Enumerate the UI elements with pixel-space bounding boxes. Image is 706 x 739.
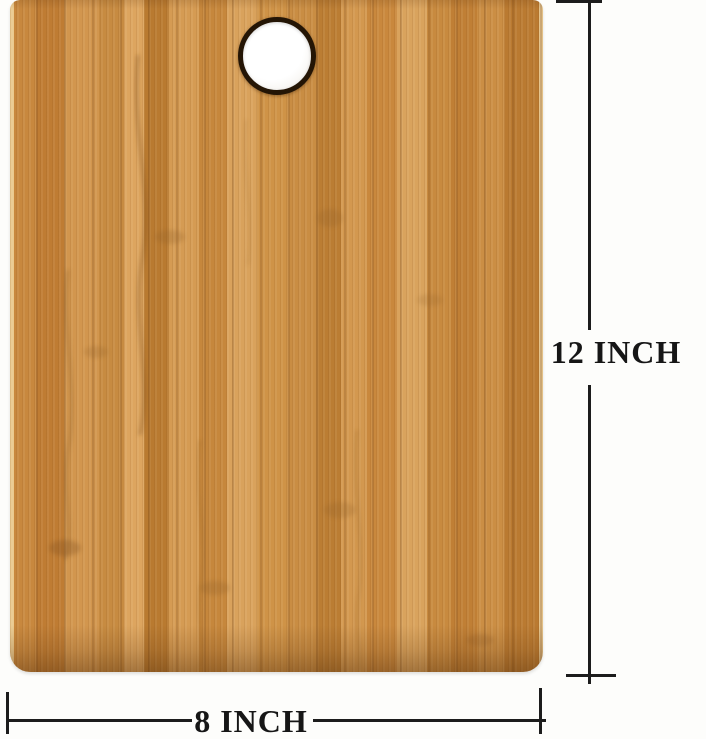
height-dimension-cap-top	[556, 0, 602, 3]
height-dimension-line-lower	[588, 385, 591, 684]
wood-grain-texture	[10, 0, 543, 672]
width-dimension-cap-left	[6, 692, 9, 734]
cutting-board-photo	[10, 0, 543, 672]
height-dimension-cap-bottom	[566, 674, 616, 677]
width-dimension-line-left	[6, 719, 192, 722]
width-dimension-label: 8 INCH	[184, 703, 318, 739]
product-dimension-image: 12 INCH 8 INCH	[0, 0, 706, 739]
height-dimension-line-upper	[588, 0, 591, 330]
width-dimension-line-right	[313, 719, 546, 722]
width-dimension-cap-right	[539, 688, 542, 734]
hanging-hole	[238, 17, 316, 95]
height-dimension-label: 12 INCH	[549, 334, 683, 371]
